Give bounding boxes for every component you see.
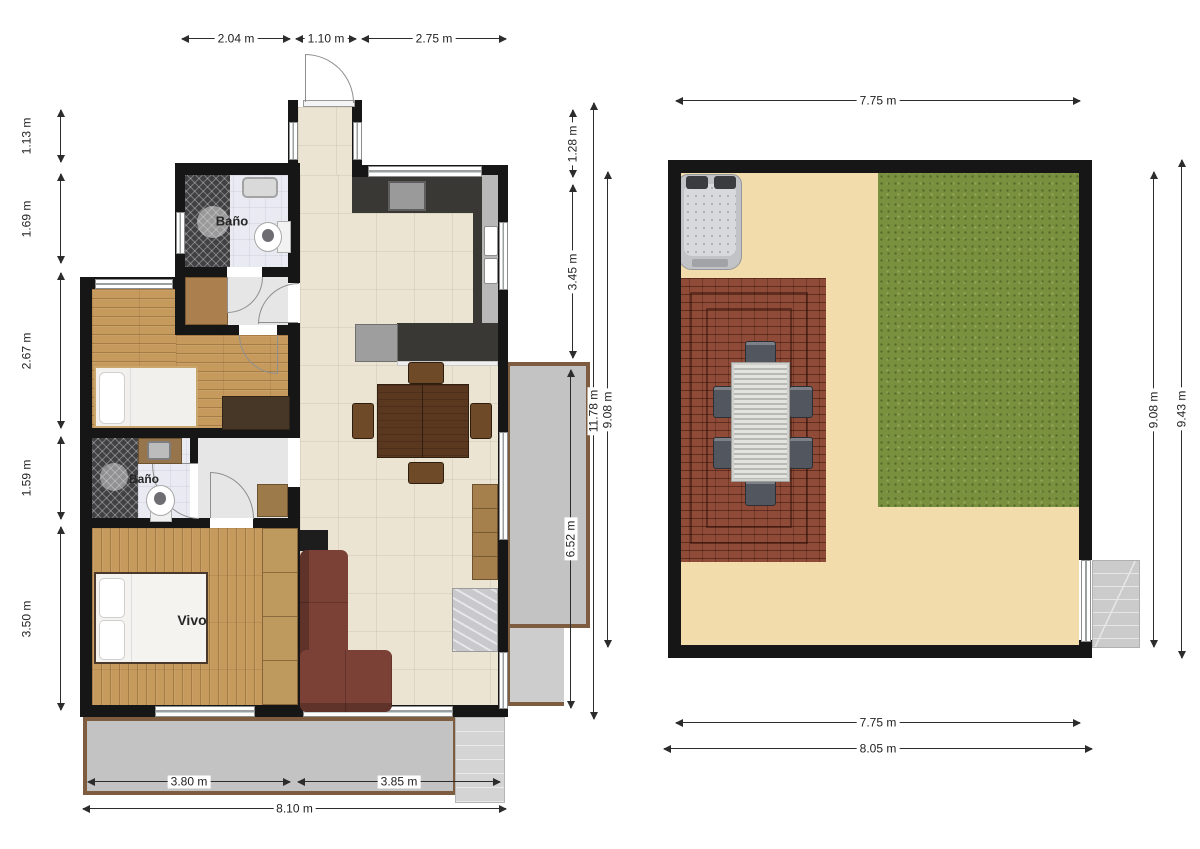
wall: [668, 160, 1092, 173]
dimension: 2.75 m: [362, 38, 506, 39]
dim-label: 8.10 m: [273, 803, 316, 816]
dim-label: 1.10 m: [305, 33, 348, 46]
outdoor-chair: [789, 386, 813, 418]
wall: [175, 325, 239, 335]
dimension: 11.78 m: [593, 103, 594, 719]
kitchen-sink: [484, 258, 498, 284]
dimension: 7.75 m: [676, 100, 1080, 101]
dim-label: 7.75 m: [857, 95, 900, 108]
dim-label: 1.69 m: [21, 197, 34, 240]
dim-label: 8.05 m: [857, 743, 900, 756]
dim-label: 1.13 m: [21, 115, 34, 158]
vestibule-floor: [298, 107, 352, 175]
floorplan-canvas: Baño Baño Vivo 2.04 m 1.10 m 2.75 m 1.13…: [0, 0, 1200, 849]
balcony-right: [506, 362, 590, 628]
room-label-bedroom-main: Vivo: [177, 612, 206, 628]
wall: [262, 267, 300, 277]
dining-chair: [352, 403, 374, 439]
window: [95, 279, 173, 289]
room-label-bath-mid: Baño: [129, 472, 159, 486]
dimension: 1.28 m: [572, 110, 573, 177]
dimension: 7.75 m: [676, 722, 1080, 723]
bed-seam: [130, 368, 131, 426]
dim-label: 9.08 m: [1148, 388, 1161, 431]
dimension: 3.85 m: [298, 781, 500, 782]
window: [499, 652, 508, 709]
dimension: 1.13 m: [60, 110, 61, 162]
dim-label: 3.85 m: [378, 776, 421, 789]
dimension: 1.69 m: [60, 174, 61, 263]
dimension: 3.50 m: [60, 527, 61, 710]
pillow: [99, 372, 125, 424]
dimension: 3.80 m: [88, 781, 290, 782]
wall: [1079, 160, 1092, 560]
dining-table: [377, 384, 469, 458]
dim-label: 9.43 m: [1176, 388, 1189, 431]
balcony-right-lower: [506, 628, 564, 706]
outdoor-table: [732, 363, 789, 481]
dim-label: 2.04 m: [215, 33, 258, 46]
dimension: 3.45 m: [572, 185, 573, 358]
wall: [175, 163, 298, 175]
wall: [277, 325, 300, 335]
dining-chair: [408, 462, 444, 484]
wardrobe: [262, 528, 298, 705]
hot-tub-basin: [684, 184, 736, 256]
dimension: 1.59 m: [60, 437, 61, 519]
pillow: [99, 578, 125, 618]
kitchen-counter-bottom: [397, 323, 498, 361]
dim-label: 3.80 m: [168, 776, 211, 789]
dim-label: 3.45 m: [567, 250, 580, 293]
dining-chair: [408, 362, 444, 384]
dimension: 2.04 m: [182, 38, 290, 39]
dimension: 9.43 m: [1181, 160, 1182, 658]
dimension: 8.05 m: [664, 748, 1092, 749]
stove: [388, 181, 426, 211]
dim-label: 3.50 m: [21, 597, 34, 640]
dim-label: 2.75 m: [413, 33, 456, 46]
wall: [668, 160, 681, 658]
wall: [253, 518, 300, 528]
garden-gate: [1081, 560, 1091, 642]
sink: [242, 177, 278, 198]
window: [289, 122, 298, 160]
floorplan-right: 7.75 m 9.08 m 9.43 m 7.75 m 8.05 m: [660, 0, 1200, 849]
shower-drain-circle: [100, 463, 128, 491]
dimension: 8.10 m: [83, 808, 506, 809]
toilet-bowl-center: [154, 492, 166, 505]
dimension: 9.08 m: [1153, 172, 1154, 647]
dim-label: 11.78 m: [588, 387, 601, 435]
hot-tub-step: [692, 259, 728, 267]
fridge: [355, 324, 398, 362]
window: [368, 166, 482, 177]
dim-label: 6.52 m: [565, 518, 578, 561]
hot-tub-headrest: [714, 176, 736, 189]
wall: [190, 438, 198, 464]
table-seam: [422, 385, 423, 457]
outdoor-chair: [789, 437, 813, 469]
desk: [452, 588, 498, 652]
closet-floor: [185, 277, 228, 325]
dim-label: 9.08 m: [602, 388, 615, 431]
dimension: 9.08 m: [607, 172, 608, 647]
stairs-garden: [1092, 560, 1140, 648]
window: [155, 706, 255, 717]
hot-tub-headrest: [686, 176, 708, 189]
wall: [175, 267, 227, 277]
window: [499, 222, 508, 290]
dimension: 2.67 m: [60, 273, 61, 428]
window: [353, 122, 362, 160]
stairs-left-plan: [455, 717, 505, 803]
pillow: [99, 620, 125, 660]
wall: [1079, 640, 1092, 658]
sofa-horizontal: [300, 650, 392, 712]
dim-label: 7.75 m: [857, 717, 900, 730]
entry-door-arc: [305, 54, 354, 103]
wall: [80, 518, 210, 528]
hall-bench: [257, 484, 288, 517]
dim-label: 1.59 m: [21, 457, 34, 500]
wall: [80, 277, 92, 717]
kitchen-sink: [484, 226, 498, 256]
dim-label: 2.67 m: [21, 329, 34, 372]
grass-area: [878, 173, 1079, 507]
rug: [222, 396, 290, 430]
sideboard: [472, 484, 498, 580]
dining-chair: [470, 403, 492, 439]
outdoor-chair: [745, 480, 776, 506]
dimension: 1.10 m: [296, 38, 356, 39]
dimension: 6.52 m: [570, 370, 571, 708]
window: [176, 212, 185, 254]
toilet-bowl-center: [262, 229, 274, 242]
wall: [668, 645, 1092, 658]
floorplan-left: Baño Baño Vivo 2.04 m 1.10 m 2.75 m 1.13…: [0, 0, 660, 849]
bed-seam: [131, 574, 132, 662]
sink: [147, 441, 171, 460]
window: [499, 432, 508, 540]
tv: [300, 530, 328, 551]
dim-label: 1.28 m: [567, 122, 580, 165]
room-label-bath-top: Baño: [216, 214, 249, 229]
